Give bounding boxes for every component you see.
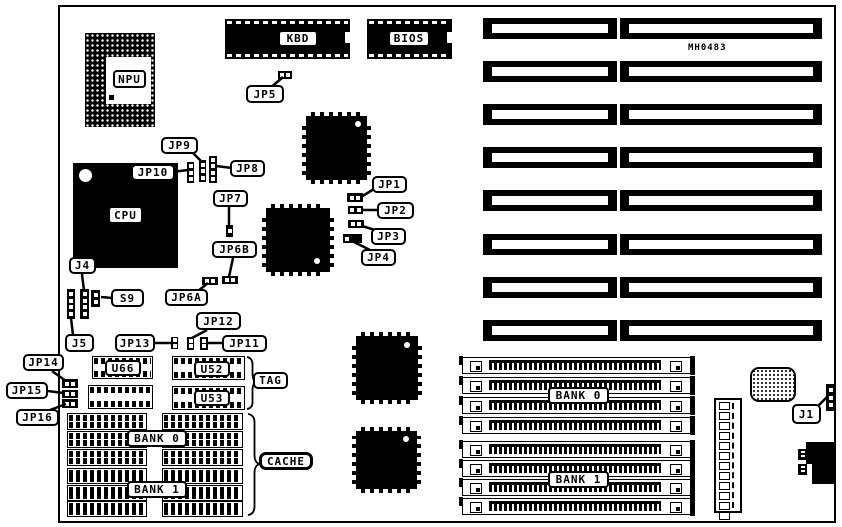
s9-switch [91,290,100,307]
isa-slot-segment [483,277,617,298]
npu-socket: NPU [85,33,155,127]
isa-slot-segment [483,320,617,341]
isa-slot-segment [620,190,822,211]
jp4-jumper [343,234,362,243]
jp12-label: JP12 [196,312,241,330]
j5-connector [67,289,75,319]
jp1-label: JP1 [372,176,407,193]
pin1-dot [109,95,114,100]
j4-connector [80,289,89,319]
u52-label: U52 [194,361,230,377]
j5-label: J5 [65,334,94,352]
npu-label: NPU [113,70,146,88]
pin-row [369,21,450,24]
simm-socket [462,357,692,374]
jp16-jumper [62,399,78,408]
isa-slot-segment [483,147,617,168]
jp6a-jumper [202,277,218,285]
qfp-chip [356,336,418,400]
tag-label: TAG [253,372,288,389]
cache-dip [67,449,147,466]
jp6b-label: JP6B [212,241,257,258]
cache-dip [67,501,147,517]
isa-slot-segment [620,18,822,39]
board-part-number: MH0483 [688,43,727,53]
jp14-label: JP14 [23,354,64,371]
power-connector [714,398,742,513]
j4-label: J4 [69,257,96,274]
isa-slot-segment [483,104,617,125]
jp2-label: JP2 [377,202,414,219]
simm-socket [462,417,692,434]
jp3-label: JP3 [371,228,406,245]
pin1-circle [79,169,92,182]
isa-slot-segment [620,320,822,341]
jp6a-label: JP6A [165,289,208,306]
jp14-jumper [62,379,78,388]
simm-bank1-label: BANK 1 [548,471,609,488]
motherboard-diagram: NPU KBD BIOS CPU [0,0,842,527]
simm-bank0-label: BANK 0 [548,387,609,404]
jp7-jumper [226,225,233,237]
jp2-jumper [348,206,363,214]
bios-chip: BIOS [367,19,452,59]
isa-slot-segment [483,190,617,211]
isa-slot-segment [483,234,617,255]
cache-dip [162,449,243,466]
chip-notch [345,32,350,43]
isa-slot-segment [483,18,617,39]
isa-slot-segment [483,61,617,82]
jp1-jumper [347,193,363,202]
pin-row [227,54,348,57]
jp10-label: JP10 [131,164,175,181]
jp3-jumper [348,220,364,228]
cpu-label: CPU [108,206,143,224]
cache-label: CACHE [259,452,313,470]
u66-label: U66 [105,360,141,376]
s9-label: S9 [111,289,144,307]
j1-connector [826,384,835,411]
jp8-label: JP8 [230,160,265,177]
jp10-jumper [187,162,194,183]
simm-socket [462,441,692,458]
cache-bank0-label: BANK 0 [127,430,187,447]
jp5-jumper [278,71,292,79]
sram-socket [88,385,153,409]
qfp-chip [266,208,330,272]
oscillator [750,367,796,402]
qfp-chip [356,431,417,489]
jp7-label: JP7 [213,190,248,207]
pin1-dot [403,436,409,442]
jp5-label: JP5 [246,85,284,103]
isa-slot-segment [620,234,822,255]
pin1-dot [314,258,320,264]
cache-dip [162,501,243,517]
jp16-label: JP16 [16,409,59,426]
cache-dip [67,413,147,430]
u53-label: U53 [194,390,230,406]
kbd-label: KBD [278,30,318,47]
isa-slot-segment [620,147,822,168]
qfp-chip [306,116,367,180]
jp13-jumper [171,337,178,349]
chip-notch [447,32,452,43]
jp6b-jumper [222,276,238,284]
isa-slot-segment [620,61,822,82]
jp9-label: JP9 [161,137,198,154]
jp8-jumper [209,156,217,183]
cache-dip [162,413,243,430]
jp9-jumper [199,160,206,182]
pin1-dot [404,342,410,348]
jp11-jumper [200,337,208,350]
isa-slot-segment [620,277,822,298]
jp13-label: JP13 [115,334,155,352]
kbd-chip: KBD [225,19,350,59]
bios-label: BIOS [388,30,430,47]
pin1-dot [355,121,361,127]
pin-row [227,21,348,24]
cache-bank1-label: BANK 1 [127,481,187,498]
simm-socket [462,498,692,515]
isa-slot-segment [620,104,822,125]
jp15-label: JP15 [6,382,48,399]
jp4-label: JP4 [361,249,396,266]
pin-row [369,54,450,57]
jp15-jumper [62,390,78,398]
jp12-jumper [187,337,194,350]
j1-label: J1 [792,404,821,424]
npu-socket-cavity: NPU [106,57,151,104]
jp11-label: JP11 [222,335,267,352]
